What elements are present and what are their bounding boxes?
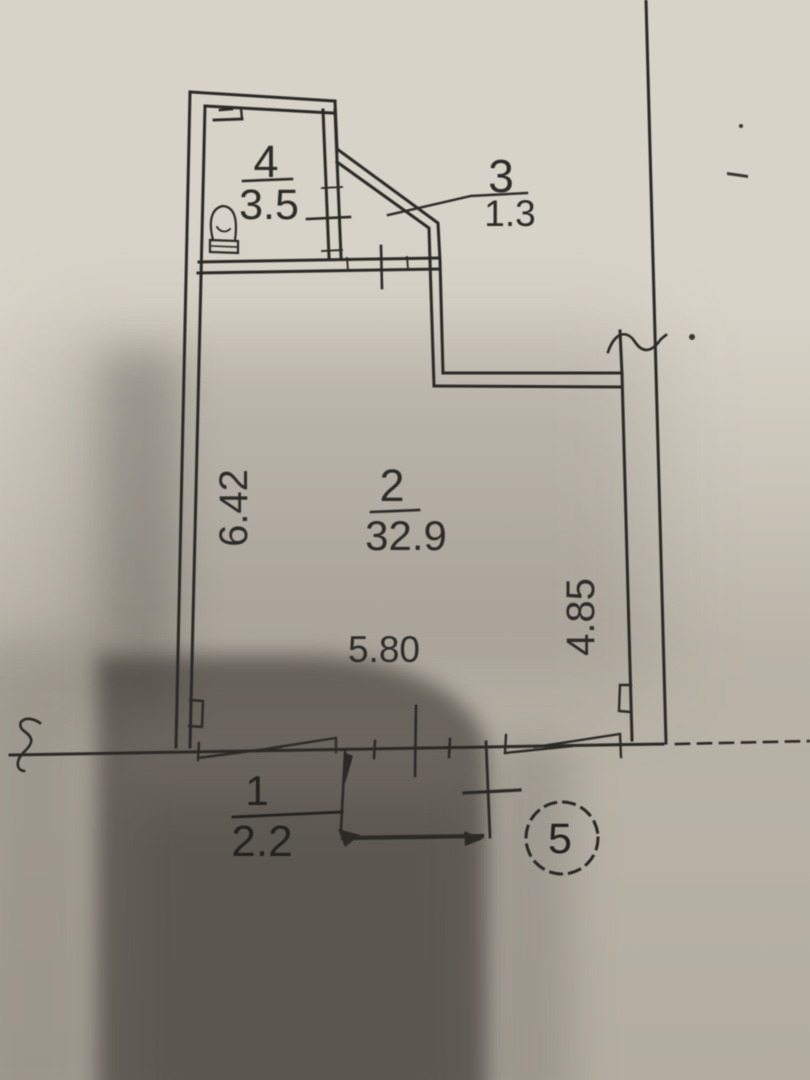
svg-text:5.80: 5.80: [348, 629, 420, 670]
svg-text:32.9: 32.9: [365, 512, 447, 559]
svg-text:2.2: 2.2: [231, 817, 292, 866]
svg-text:2: 2: [379, 460, 404, 511]
svg-text:4.85: 4.85: [559, 578, 603, 656]
svg-text:5: 5: [548, 815, 572, 863]
svg-text:1: 1: [245, 767, 268, 814]
svg-text:3.5: 3.5: [239, 181, 299, 229]
svg-text:6.42: 6.42: [212, 469, 256, 547]
svg-text:1.3: 1.3: [484, 193, 535, 234]
